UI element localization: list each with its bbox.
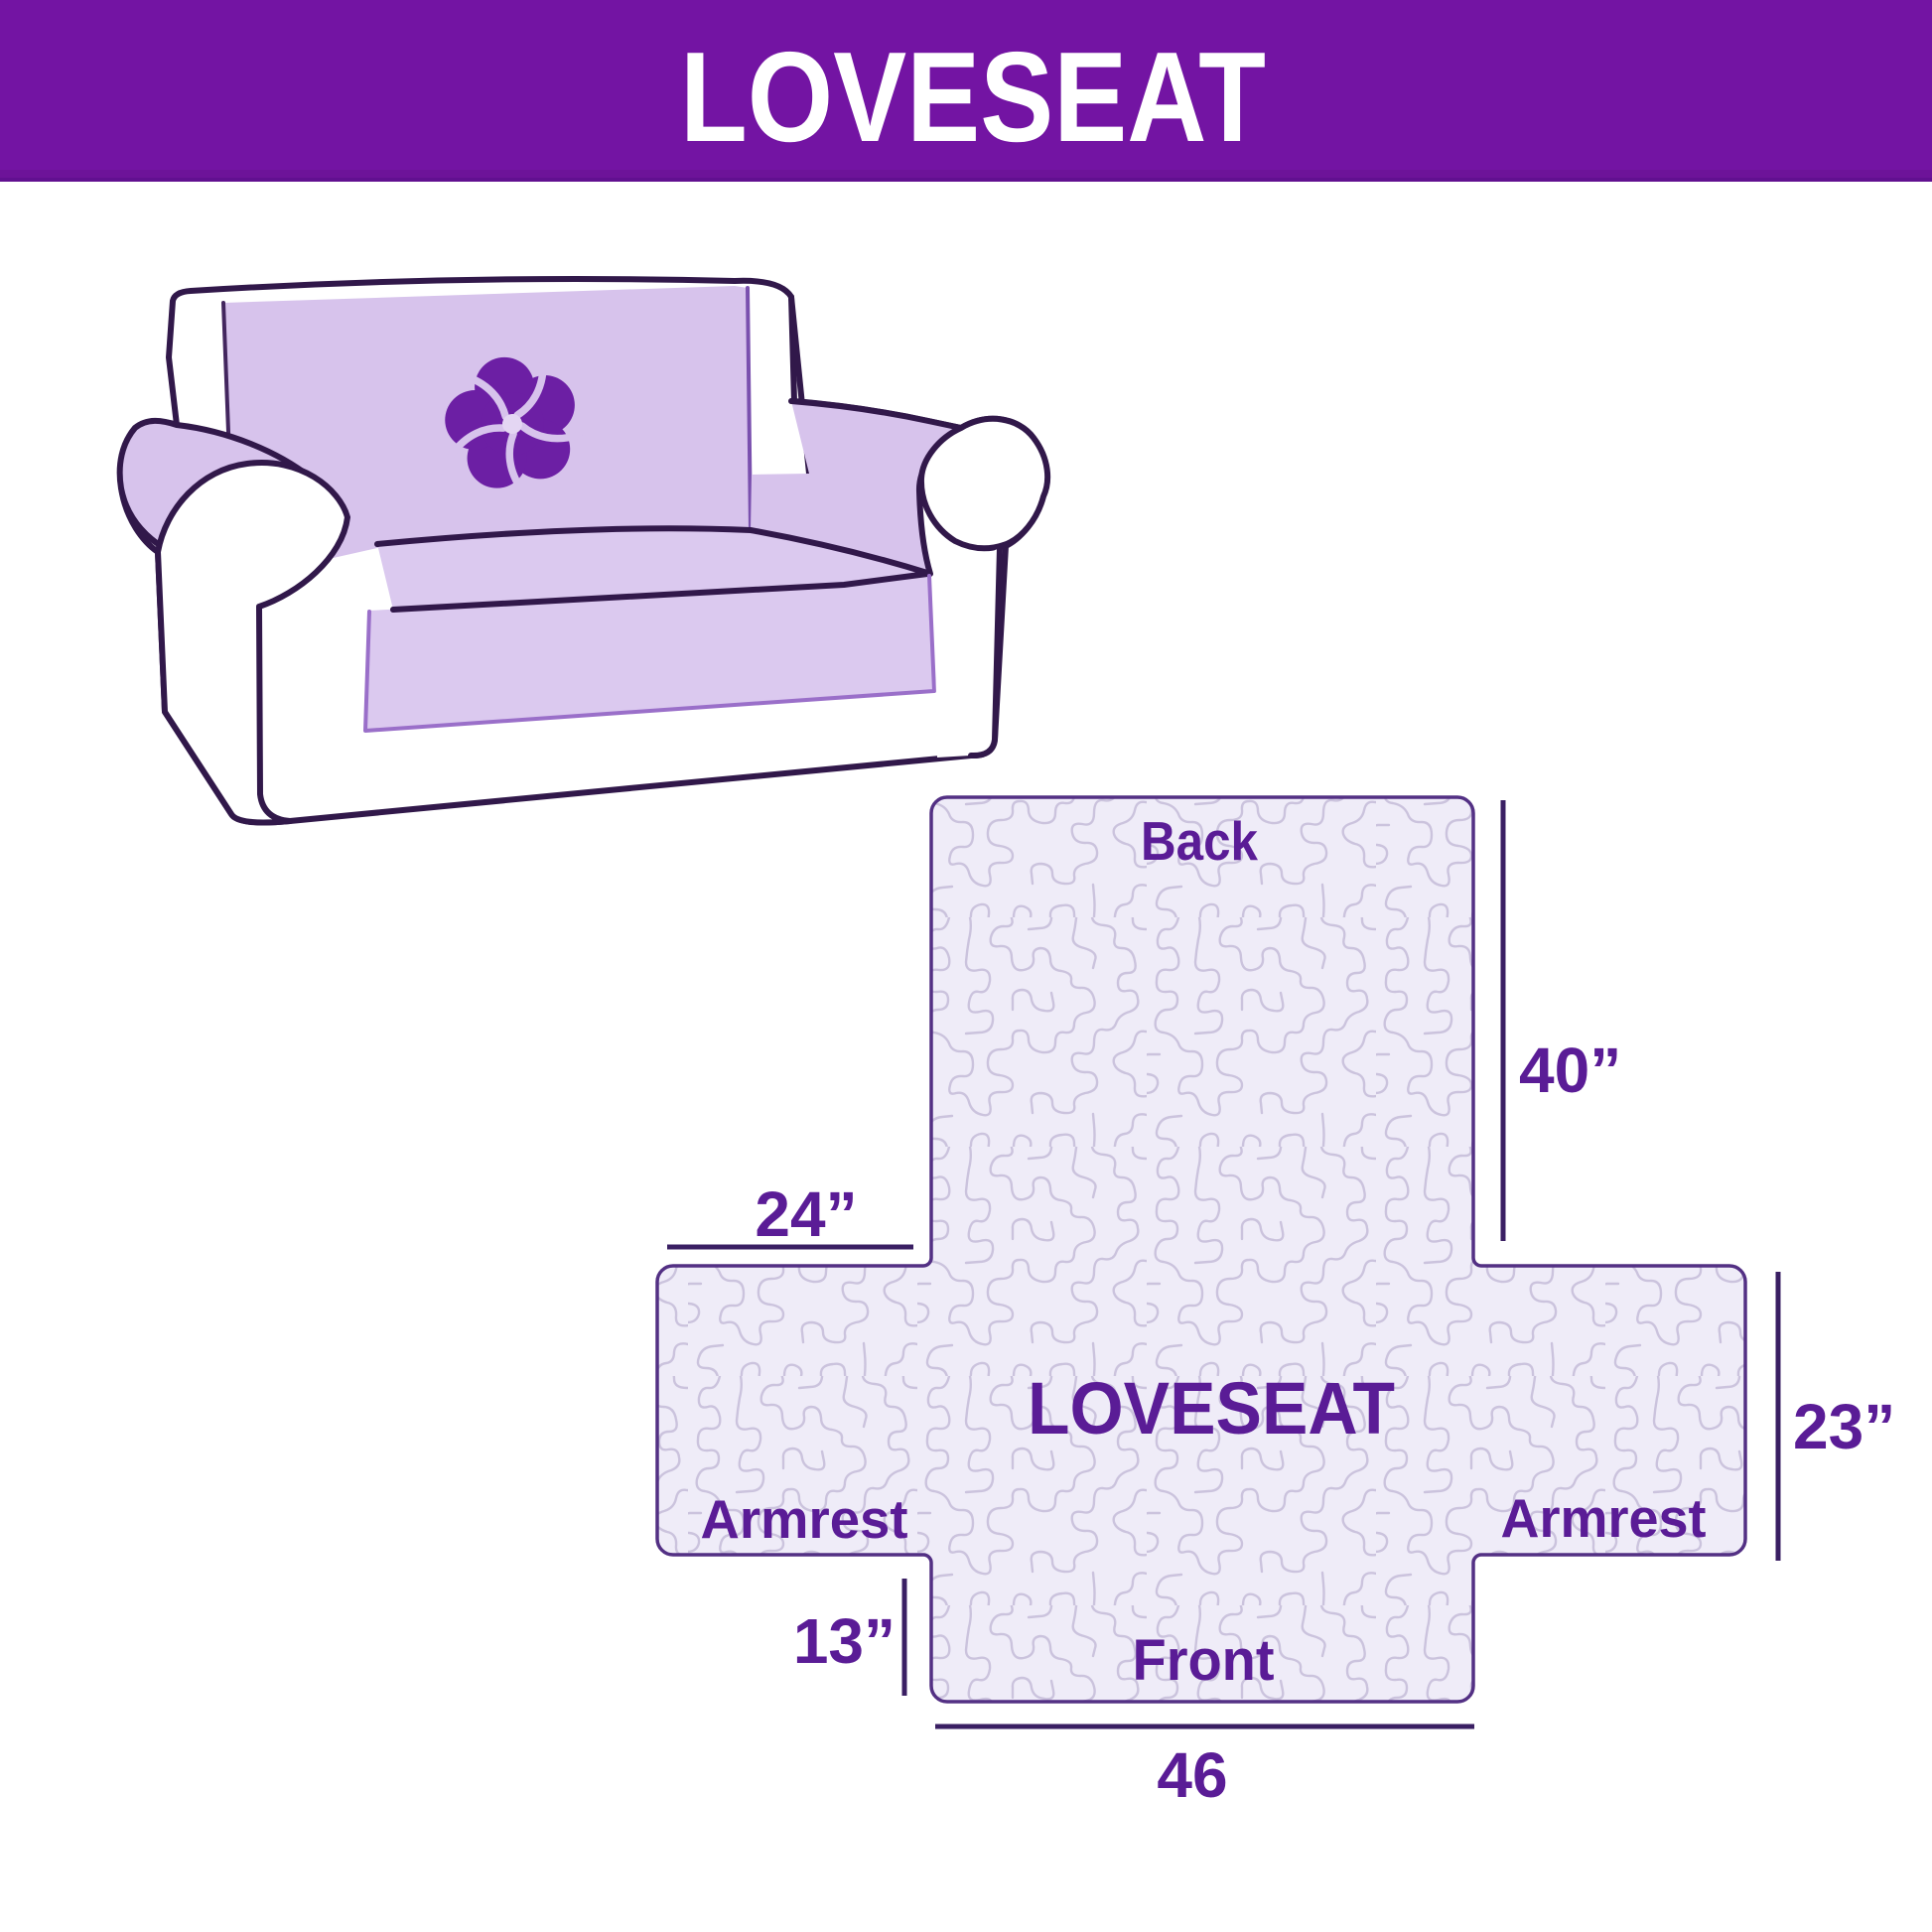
- svg-text:40”: 40”: [1519, 1035, 1621, 1106]
- svg-text:46: 46: [1157, 1739, 1227, 1811]
- svg-text:13”: 13”: [793, 1605, 896, 1677]
- svg-text:LOVESEAT: LOVESEAT: [1028, 1367, 1395, 1449]
- svg-text:24”: 24”: [755, 1178, 857, 1250]
- svg-text:23”: 23”: [1793, 1391, 1895, 1462]
- svg-text:Armrest: Armrest: [701, 1488, 908, 1550]
- svg-text:Front: Front: [1133, 1628, 1275, 1693]
- svg-text:Back: Back: [1141, 810, 1258, 872]
- svg-text:LOVESEAT: LOVESEAT: [680, 26, 1266, 169]
- svg-text:Armrest: Armrest: [1501, 1487, 1707, 1549]
